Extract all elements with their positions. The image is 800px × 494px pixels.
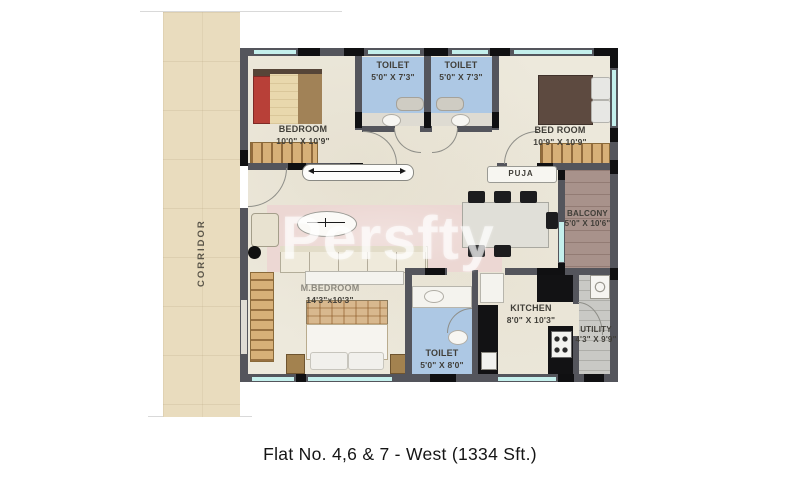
wall-toilets-bottom — [457, 126, 492, 132]
toilet2-label: TOILET 5'0" X 7'3" — [430, 60, 492, 83]
wall-lintel — [558, 263, 565, 275]
window-glass — [452, 50, 488, 54]
dining-chair — [494, 191, 511, 203]
master-bed-pillow-1 — [310, 352, 348, 370]
dining-chair — [494, 245, 511, 257]
corridor-label: CORRIDOR — [196, 195, 207, 287]
room-dims: 10'9" X 10'9" — [516, 137, 604, 148]
balcony-label: BALCONY 5'0" X 10'6" — [561, 209, 614, 230]
wall-lintel — [344, 48, 364, 56]
master-bedroom-label: M.BEDROOM 14'3"x10'3" — [284, 283, 376, 306]
room-dims: 5'0" X 7'3" — [430, 72, 492, 83]
room-dims: 5'0" X 8'0" — [411, 360, 473, 371]
room-name: TOILET — [362, 60, 424, 72]
window-glass — [254, 50, 296, 54]
wall-lintel — [610, 160, 618, 174]
master-bed-pillow-2 — [348, 352, 384, 370]
caption: Flat No. 4,6 & 7 - West (1334 Sft.) — [0, 444, 800, 465]
wall-lintel — [610, 128, 618, 142]
wall-lintel — [594, 48, 618, 56]
room-name: UTILITY — [572, 325, 620, 335]
toilet2-tub-icon — [436, 97, 464, 111]
arrow-left-icon — [308, 168, 314, 174]
wall-lintel — [584, 374, 604, 382]
wall-lintel — [492, 112, 499, 128]
window-glass — [368, 50, 420, 54]
wall-lintel — [558, 170, 565, 180]
entrance-door-gap — [240, 166, 248, 208]
bed2-pillow-1 — [591, 77, 611, 100]
sliding-window-icon — [302, 164, 414, 181]
wall-lintel — [558, 374, 574, 382]
room-name: PUJA — [508, 169, 533, 178]
wall-lintel — [610, 56, 618, 68]
wall-lintel — [424, 112, 431, 128]
watermark: Persfty — [281, 203, 495, 273]
arrow-right-icon — [400, 168, 406, 174]
kitchen-label: KITCHEN 8'0" X 10'3" — [488, 303, 574, 326]
side-table-round — [248, 246, 261, 259]
wall-lintel — [298, 48, 320, 56]
window-glass — [498, 377, 556, 381]
kitchen-counter-top — [537, 272, 573, 302]
room-name: BED ROOM — [516, 125, 604, 137]
window-glass — [612, 70, 616, 126]
wall-lintel — [430, 374, 456, 382]
room-dims: 10'0" X 10'9" — [260, 136, 346, 147]
toilet3-label: TOILET 5'0" X 8'0" — [411, 348, 473, 371]
puja-label: PUJA — [487, 169, 555, 179]
wall-lintel — [296, 374, 306, 382]
room-name: M.BEDROOM — [284, 283, 376, 295]
bed2-pillow-2 — [591, 100, 611, 123]
dining-chair — [546, 212, 558, 229]
window-glass — [252, 377, 294, 381]
fridge — [480, 273, 504, 303]
wall-lintel — [424, 48, 448, 56]
sliding-window-arrow — [312, 171, 402, 172]
utility-label: UTILITY 4'3" X 9'9" — [572, 325, 620, 346]
window-glass — [514, 50, 592, 54]
toilet1-tub-icon — [396, 97, 424, 111]
nightstand — [286, 354, 305, 374]
wall-lintel — [490, 48, 510, 56]
room-name: TOILET — [430, 60, 492, 72]
floor-plan-page: CORRIDOR — [0, 0, 800, 494]
bedroom2-label: BED ROOM 10'9" X 10'9" — [516, 125, 604, 148]
toilet1-label: TOILET 5'0" X 7'3" — [362, 60, 424, 83]
room-dims: 14'3"x10'3" — [284, 295, 376, 306]
wall-lintel — [610, 268, 618, 280]
toilet3-basin-icon — [424, 290, 444, 303]
room-dims: 4'3" X 9'9" — [572, 335, 620, 345]
bed1-mattress — [270, 74, 298, 124]
window-glass — [308, 377, 392, 381]
dining-chair — [520, 191, 537, 203]
room-name: BALCONY — [561, 209, 614, 219]
wall-utility-left — [573, 270, 579, 304]
room-dims: 8'0" X 10'3" — [488, 315, 574, 326]
bedroom1-label: BEDROOM 10'0" X 10'9" — [260, 124, 346, 147]
kitchen-sink-icon — [481, 352, 497, 370]
master-wardrobe — [250, 272, 274, 362]
armchair — [251, 213, 279, 247]
bed1-blanket — [298, 74, 322, 124]
stove-icon — [551, 331, 572, 358]
left-wall-window — [241, 300, 247, 354]
room-dims: 5'0" X 7'3" — [362, 72, 424, 83]
washing-machine-icon — [590, 275, 610, 299]
room-name: TOILET — [411, 348, 473, 360]
bed2-body — [538, 75, 593, 125]
wall-lintel — [240, 150, 248, 166]
room-name: BEDROOM — [260, 124, 346, 136]
room-name: KITCHEN — [488, 303, 574, 315]
dining-chair — [468, 191, 485, 203]
wall-lintel — [355, 112, 362, 128]
room-dims: 5'0" X 10'6" — [561, 219, 614, 229]
